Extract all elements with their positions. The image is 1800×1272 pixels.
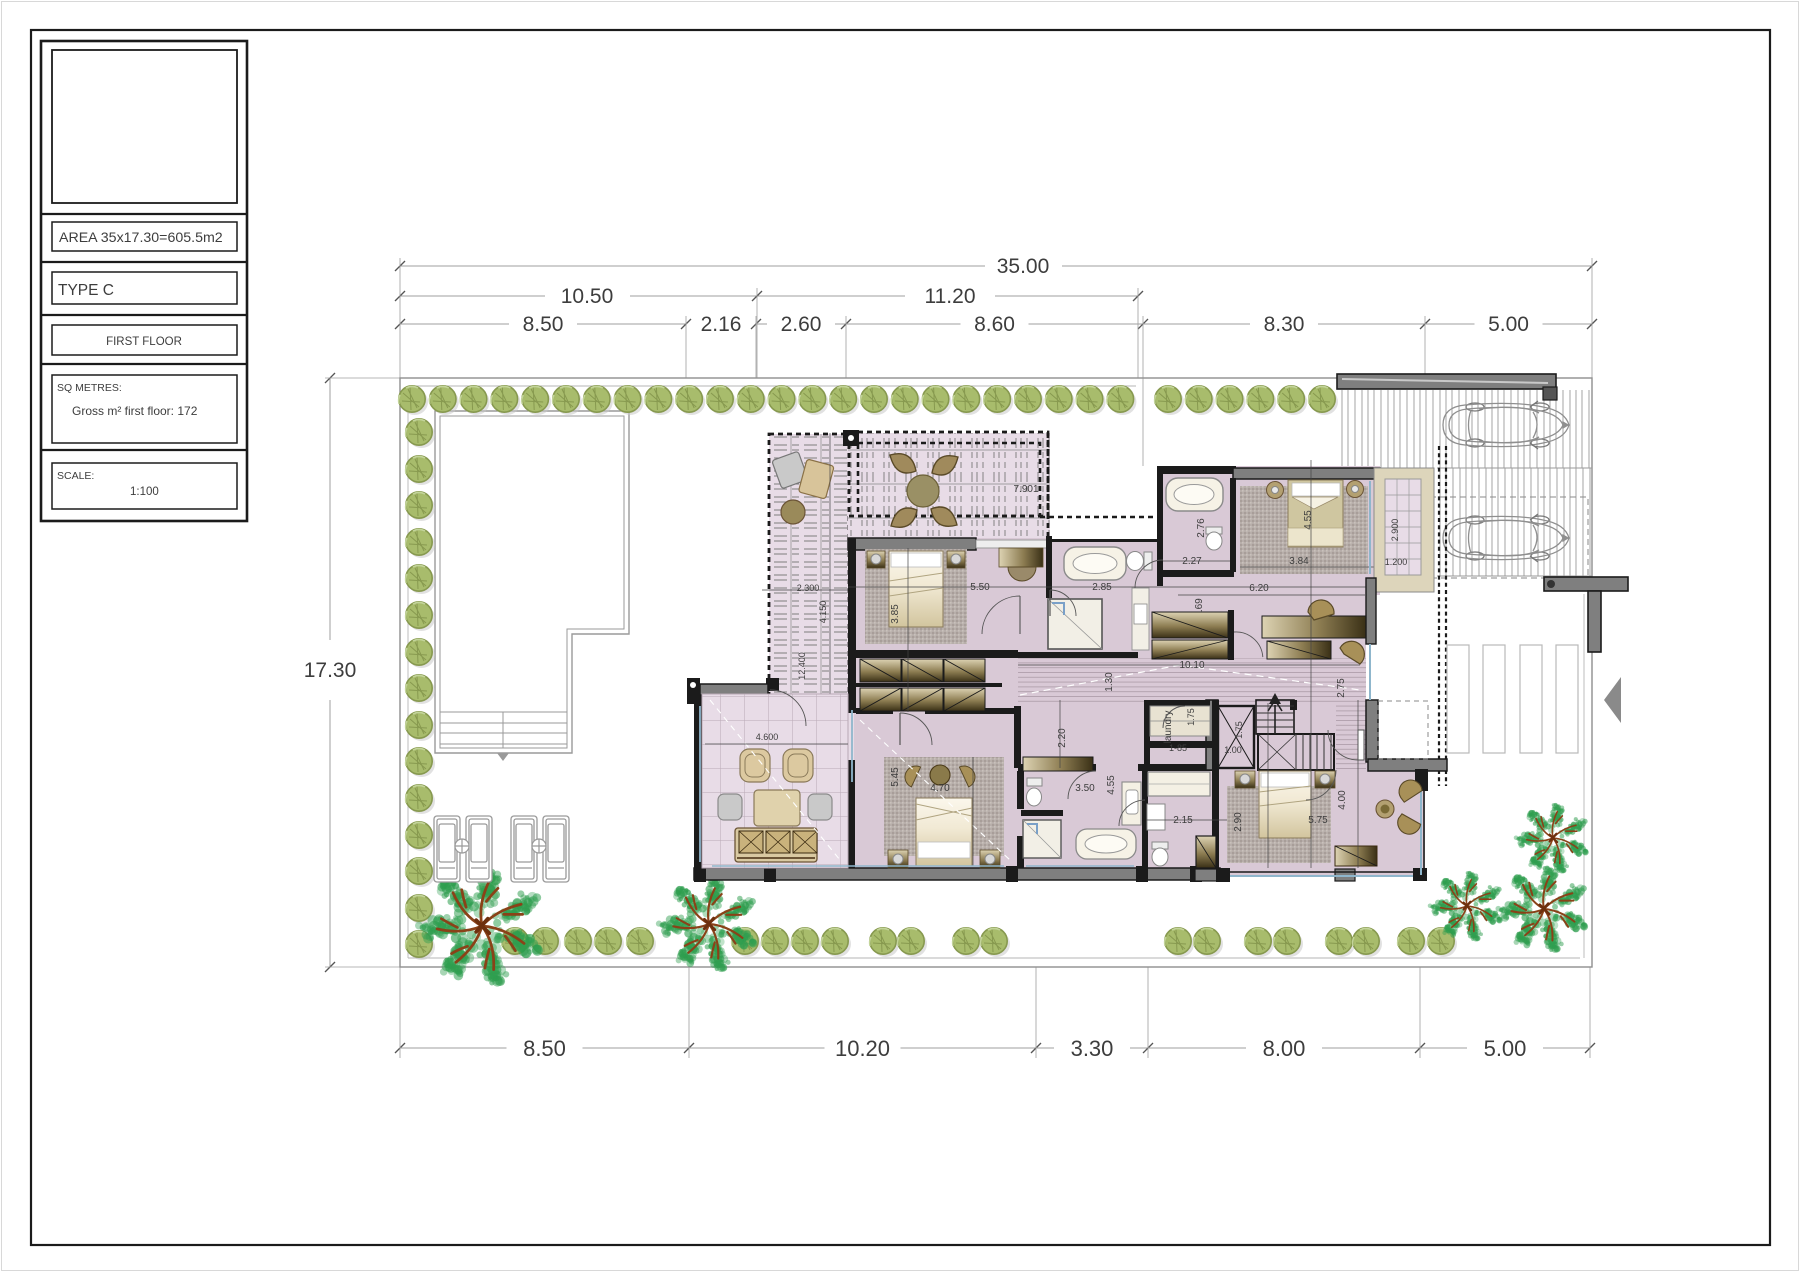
svg-text:10.20: 10.20 <box>835 1036 890 1061</box>
svg-text:AREA 35x17.30=605.5m2: AREA 35x17.30=605.5m2 <box>59 230 223 246</box>
svg-text:2.20: 2.20 <box>1057 728 1068 748</box>
svg-text:SQ METRES:: SQ METRES: <box>57 382 122 394</box>
svg-text:2.76: 2.76 <box>1196 518 1207 538</box>
svg-text:10.10: 10.10 <box>1179 660 1204 671</box>
svg-text:1.00: 1.00 <box>1224 745 1242 755</box>
svg-text:4.55: 4.55 <box>1303 510 1314 530</box>
svg-text:1.30: 1.30 <box>1104 672 1115 692</box>
svg-text:1.200: 1.200 <box>1385 557 1408 567</box>
svg-text:4.150: 4.150 <box>818 601 828 624</box>
svg-text:8.60: 8.60 <box>974 313 1015 336</box>
svg-text:8.50: 8.50 <box>523 1036 566 1061</box>
svg-text:SCALE:: SCALE: <box>57 470 94 482</box>
svg-text:8.50: 8.50 <box>523 313 564 336</box>
svg-text:2.27: 2.27 <box>1182 556 1202 567</box>
svg-text:11.20: 11.20 <box>925 285 976 308</box>
svg-text:10.50: 10.50 <box>561 285 614 308</box>
svg-text:Gross m² first floor: 172: Gross m² first floor: 172 <box>72 404 198 418</box>
svg-text:2.85: 2.85 <box>1092 582 1112 593</box>
svg-text:4.70: 4.70 <box>930 783 950 794</box>
svg-text:1.75: 1.75 <box>1186 708 1196 726</box>
svg-text:5.50: 5.50 <box>970 582 990 593</box>
svg-text:1:100: 1:100 <box>130 486 159 498</box>
svg-text:laundry: laundry <box>1163 711 1174 744</box>
svg-text:8.00: 8.00 <box>1263 1036 1306 1061</box>
svg-text:2.300: 2.300 <box>797 583 820 593</box>
svg-text:FIRST FLOOR: FIRST FLOOR <box>106 336 182 348</box>
svg-text:4.600: 4.600 <box>756 732 779 742</box>
svg-text:7.901: 7.901 <box>1013 484 1038 495</box>
svg-text:12.400: 12.400 <box>797 652 807 680</box>
svg-text:5.00: 5.00 <box>1488 313 1529 336</box>
svg-text:1.75: 1.75 <box>1234 721 1244 739</box>
svg-text:17.30: 17.30 <box>304 659 357 682</box>
svg-text:1-85: 1-85 <box>1169 743 1187 753</box>
svg-text:4.55: 4.55 <box>1106 775 1117 795</box>
svg-text:TYPE C: TYPE C <box>58 282 114 299</box>
svg-text:5.45: 5.45 <box>890 767 901 787</box>
svg-text:4.00: 4.00 <box>1337 790 1348 810</box>
svg-text:3.84: 3.84 <box>1289 556 1309 567</box>
svg-text:6.20: 6.20 <box>1249 583 1269 594</box>
svg-text:2.15: 2.15 <box>1173 815 1193 826</box>
svg-text:2.60: 2.60 <box>781 313 822 336</box>
svg-text:2.90: 2.90 <box>1233 812 1244 832</box>
svg-text:2.900: 2.900 <box>1390 519 1400 542</box>
svg-text:3.30: 3.30 <box>1071 1036 1114 1061</box>
svg-text:5.00: 5.00 <box>1484 1036 1527 1061</box>
svg-text:3.85: 3.85 <box>890 604 901 624</box>
svg-text:3.50: 3.50 <box>1075 783 1095 794</box>
svg-text:2.75: 2.75 <box>1336 678 1347 698</box>
svg-text:2.16: 2.16 <box>701 313 742 336</box>
svg-text:8.30: 8.30 <box>1264 313 1305 336</box>
svg-text:35.00: 35.00 <box>997 255 1050 278</box>
